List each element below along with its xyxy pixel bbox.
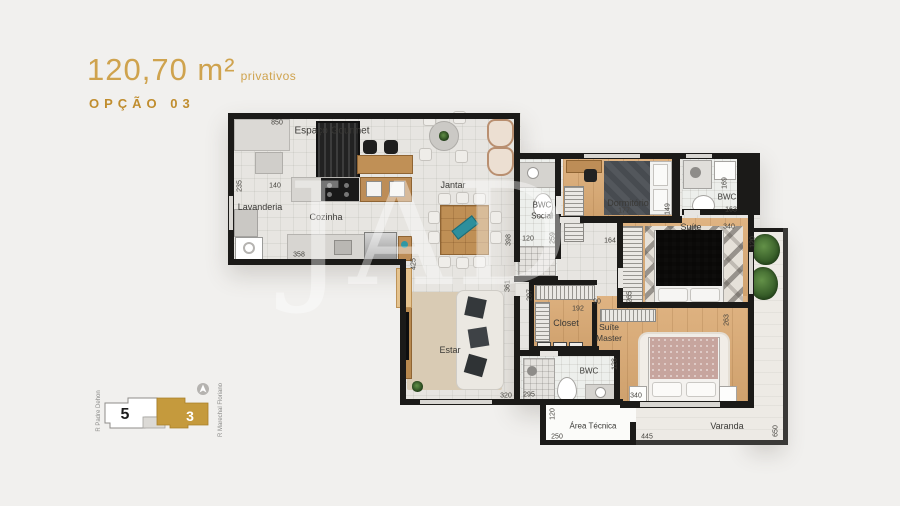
street-label-left: R Padre Dehon — [96, 390, 102, 431]
wall — [514, 159, 520, 262]
room-label-bwc-social-2: Social — [531, 212, 553, 221]
dim-label: 207 — [527, 289, 534, 301]
armchair — [487, 147, 514, 176]
wall — [540, 440, 636, 445]
dim-label: 445 — [641, 434, 653, 441]
bed-master-pillow — [652, 382, 682, 397]
wall — [672, 159, 680, 223]
washer-drum — [243, 242, 255, 254]
sofa-cushion — [468, 327, 490, 349]
dining-chair — [490, 231, 502, 244]
room-label-area-tecnica: Área Técnica — [570, 422, 617, 431]
dining-chair — [438, 256, 451, 268]
room-label-varanda: Varanda — [710, 421, 743, 431]
laundry-sink — [234, 209, 258, 237]
plant-icon — [750, 267, 778, 300]
area-suffix: privativos — [241, 69, 297, 83]
option-label: OPÇÃO 03 — [89, 96, 195, 111]
dining-chair — [456, 257, 469, 269]
bed-master-duvet — [650, 337, 718, 379]
wardrobe-master — [600, 309, 656, 322]
keyplan-tower-5-number: 5 — [121, 406, 130, 423]
room-label-lavanderia: Lavanderia — [238, 202, 283, 212]
dining-chair — [490, 211, 502, 224]
wall — [783, 228, 788, 445]
stove-burner — [327, 183, 332, 188]
dim-label: 235 — [237, 180, 244, 192]
shower-area — [518, 246, 556, 276]
floorplan-page: { "header": { "area": "120,70 m²", "area… — [0, 0, 900, 506]
showerhead-icon — [527, 366, 537, 376]
keyplan-tower-3-number: 3 — [186, 408, 194, 424]
door-opening — [618, 268, 623, 288]
dining-chair — [438, 193, 451, 205]
closet-wardrobe-top — [535, 285, 595, 300]
dim-label: 295 — [523, 392, 535, 399]
dim-label: 192 — [572, 306, 584, 313]
dim-label: 259 — [550, 232, 557, 244]
stove-burner — [344, 192, 349, 197]
dim-label: 90 — [593, 299, 601, 306]
dim-label: 340 — [630, 393, 642, 400]
door-opening — [560, 217, 580, 223]
dim-label: 650 — [773, 425, 780, 437]
dim-label: 265 — [627, 291, 634, 303]
dim-label: 340 — [723, 224, 735, 231]
plant-icon — [412, 381, 423, 392]
dining-chair — [473, 193, 486, 205]
window — [686, 154, 712, 158]
room-label-espaco-gourmet: Espaço Gourmet — [294, 126, 369, 137]
fridge-icon — [364, 232, 397, 260]
dim-label: 120 — [750, 236, 757, 248]
dim-label: 140 — [269, 183, 281, 190]
table-plant-icon — [439, 131, 449, 141]
wall — [540, 405, 546, 445]
wall — [737, 153, 760, 215]
dim-label: 361 — [505, 280, 512, 292]
dim-label: 250 — [551, 434, 563, 441]
room-label-suite-master-1: Suíte — [599, 322, 619, 332]
area-value: 120,70 m² — [87, 52, 236, 87]
wall — [617, 223, 623, 308]
dim-label: 263 — [724, 314, 731, 326]
wall — [630, 440, 788, 445]
bar-counter — [357, 155, 413, 174]
stove-icon — [321, 178, 359, 201]
showerhead-icon — [690, 167, 701, 178]
dim-label: 120 — [550, 408, 557, 420]
dining-chair — [428, 231, 440, 244]
wall — [228, 113, 234, 265]
bed-master-pillow — [686, 382, 716, 397]
room-label-bwc-suite: BWC — [718, 193, 737, 202]
sofa-cushion — [464, 296, 487, 319]
wall — [400, 259, 406, 405]
bed-dormitorio-pillow — [653, 164, 668, 186]
room-label-closet: Closet — [553, 318, 579, 328]
dining-chair — [419, 148, 432, 161]
wall — [228, 259, 405, 265]
dining-chair — [456, 192, 469, 204]
dining-chair — [455, 150, 468, 163]
barstool-icon — [384, 140, 398, 154]
door-opening — [684, 210, 700, 215]
door-opening — [556, 196, 561, 214]
dim-label: 320 — [500, 393, 512, 400]
wall — [529, 280, 597, 285]
counter-sink — [334, 240, 352, 255]
window-glass-door — [640, 402, 720, 407]
armchair — [487, 119, 514, 148]
window — [420, 400, 492, 404]
room-label-jantar: Jantar — [440, 180, 465, 190]
area-title: 120,70 m²privativos — [87, 52, 296, 88]
dining-chair — [428, 211, 440, 224]
room-label-cozinha: Cozinha — [309, 212, 342, 222]
door-opening — [540, 351, 558, 356]
room-label-suite: Suíte — [680, 222, 701, 232]
room-label-dormitorio: Dormitório — [607, 198, 649, 208]
shelf-decor — [401, 241, 408, 248]
dim-label: 120 — [522, 236, 534, 243]
dim-label: 128 — [612, 358, 619, 370]
dim-label: 425 — [411, 258, 418, 270]
bed-suite-pillow — [690, 288, 720, 302]
room-label-bwc-social-1: BWC — [533, 201, 552, 210]
barstool-icon — [363, 140, 377, 154]
room-label-estar: Estar — [439, 345, 460, 355]
stove-burner — [327, 192, 332, 197]
kitchen-sink — [389, 181, 405, 197]
desk-chair — [584, 169, 597, 182]
wall — [630, 422, 636, 445]
dim-label: 850 — [271, 120, 283, 127]
bwc-master-basin — [595, 387, 606, 398]
dim-label: 169 — [722, 177, 729, 189]
keyplan-tower-3-shape — [157, 398, 208, 428]
wardrobe-dormitorio — [564, 186, 584, 242]
window — [229, 196, 233, 230]
dining-chair — [473, 256, 486, 268]
street-label-right: R Marechal Floriano — [218, 383, 224, 437]
wall — [617, 302, 748, 308]
dim-label: 149 — [665, 203, 672, 215]
bed-suite-pillow — [658, 288, 688, 302]
window — [749, 252, 753, 294]
stove-burner — [344, 183, 349, 188]
wall — [514, 350, 620, 356]
bwc-social-basin — [527, 167, 539, 179]
wall — [228, 113, 520, 119]
dim-label: 164 — [604, 238, 616, 245]
dim-label: 398 — [506, 234, 513, 246]
window — [584, 154, 640, 158]
dim-label: 358 — [293, 252, 305, 259]
oven-icon — [366, 181, 382, 197]
gourmet-sink-cabinet — [255, 152, 283, 174]
wall — [748, 228, 788, 232]
dim-label: 177 — [618, 208, 630, 215]
room-label-bwc-master: BWC — [580, 367, 599, 376]
room-label-suite-master-2: Master — [596, 333, 622, 343]
bed-suite-duvet — [656, 230, 722, 286]
closet-wardrobe-left — [535, 302, 550, 342]
dim-label: 163 — [725, 207, 737, 214]
